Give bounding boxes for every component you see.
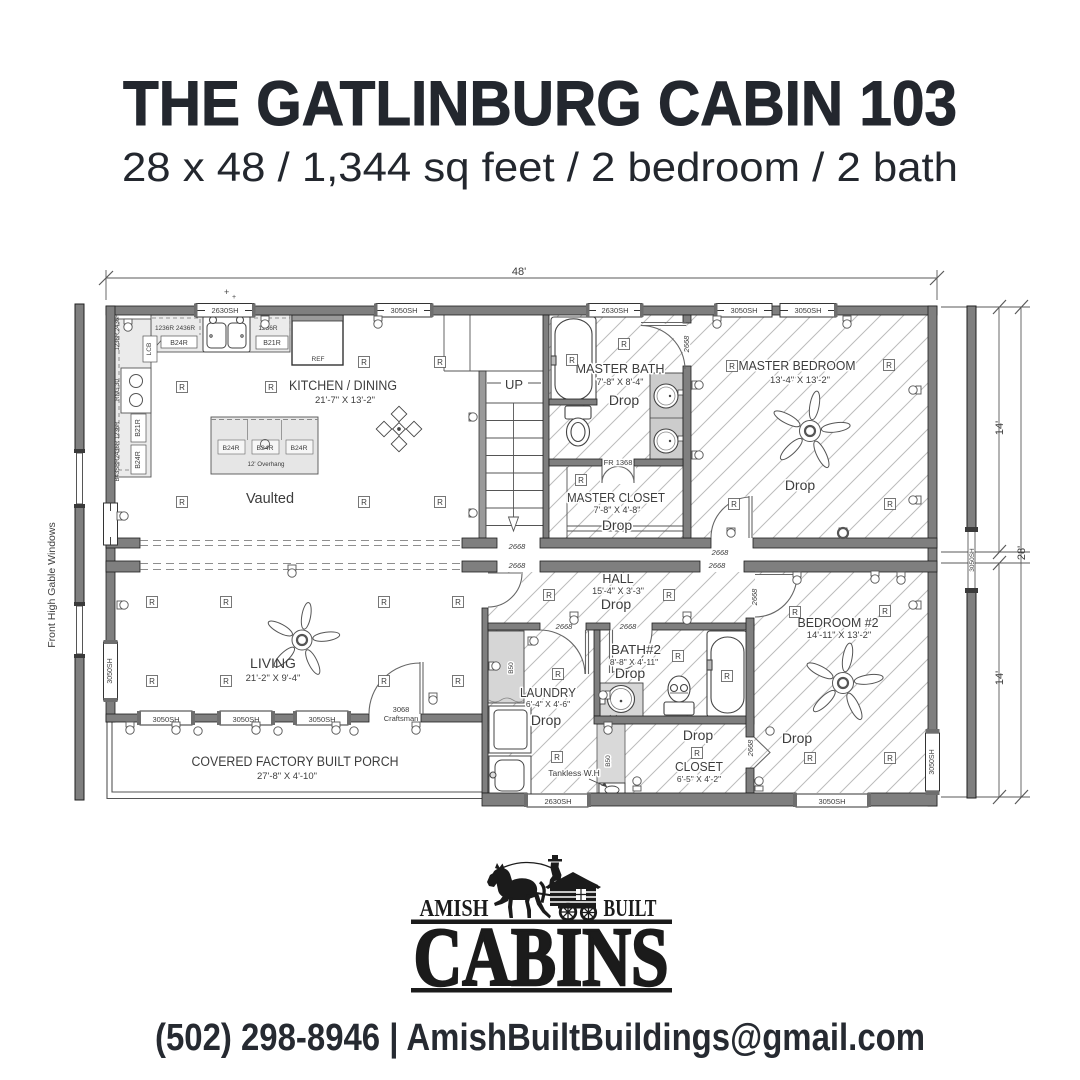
svg-text:R: R <box>455 677 461 686</box>
svg-text:COVERED FACTORY BUILT PORCH: COVERED FACTORY BUILT PORCH <box>192 754 399 769</box>
svg-text:LAUNDRY: LAUNDRY <box>520 686 577 700</box>
svg-text:2668: 2668 <box>508 542 527 551</box>
svg-text:UP: UP <box>505 377 523 392</box>
svg-text:2630SH: 2630SH <box>544 797 571 806</box>
svg-text:R: R <box>807 754 813 763</box>
svg-text:R: R <box>729 362 735 371</box>
svg-text:Drop: Drop <box>531 712 562 728</box>
svg-text:6'-5" X 4'-2": 6'-5" X 4'-2" <box>677 774 721 784</box>
svg-text:R: R <box>223 598 229 607</box>
svg-text:R: R <box>887 754 893 763</box>
svg-text:B50: B50 <box>508 662 515 674</box>
svg-text:27'-8" X 4'-10": 27'-8" X 4'-10" <box>257 771 317 782</box>
svg-text:3050SH: 3050SH <box>818 797 845 806</box>
svg-text:Drop: Drop <box>601 596 632 612</box>
svg-text:B21R: B21R <box>263 340 281 347</box>
svg-text:R: R <box>361 358 367 367</box>
svg-text:B21R: B21R <box>135 419 142 437</box>
svg-text:R: R <box>437 358 443 367</box>
svg-text:Front High Gable Windows: Front High Gable Windows <box>46 522 58 647</box>
svg-text:14': 14' <box>994 421 1006 435</box>
svg-text:2668: 2668 <box>682 335 691 354</box>
svg-text:2436R 1236R: 2436R 1236R <box>115 421 121 459</box>
svg-text:Drop: Drop <box>683 727 714 743</box>
svg-text:2630SH: 2630SH <box>601 306 628 315</box>
svg-text:1236R 2436R: 1236R 2436R <box>155 325 195 332</box>
svg-text:3050SH: 3050SH <box>390 306 417 315</box>
svg-text:B24R: B24R <box>290 445 307 452</box>
svg-text:13'-4" X 13'-2": 13'-4" X 13'-2" <box>770 375 830 386</box>
svg-text:21'-2" X 9'-4": 21'-2" X 9'-4" <box>246 673 301 684</box>
svg-text:B24R: B24R <box>222 445 239 452</box>
svg-text:3050SH: 3050SH <box>107 658 114 683</box>
svg-text:R: R <box>792 608 798 617</box>
svg-text:Tankless W.H: Tankless W.H <box>548 768 600 778</box>
svg-text:3050SH: 3050SH <box>308 715 335 724</box>
svg-text:MASTER CLOSET: MASTER CLOSET <box>567 491 665 505</box>
svg-text:3050SH: 3050SH <box>969 548 976 572</box>
svg-text:R: R <box>578 476 584 485</box>
svg-text:2668: 2668 <box>711 548 730 557</box>
svg-text:3068: 3068 <box>393 705 410 714</box>
svg-text:7'-8" X 4'-8": 7'-8" X 4'-8" <box>594 505 641 515</box>
svg-text:R: R <box>569 356 575 365</box>
svg-text:+: + <box>232 294 236 301</box>
svg-text:R: R <box>887 500 893 509</box>
svg-text:14': 14' <box>994 671 1006 685</box>
svg-text:THE GATLINBURG CABIN 103: THE GATLINBURG CABIN 103 <box>123 69 957 139</box>
svg-text:R: R <box>437 498 443 507</box>
svg-text:12' Overhang: 12' Overhang <box>248 461 286 468</box>
svg-text:R: R <box>886 361 892 370</box>
svg-text:RNG 30: RNG 30 <box>115 379 121 401</box>
svg-text:R: R <box>381 677 387 686</box>
svg-text:15'-4" X 3'-3": 15'-4" X 3'-3" <box>592 586 644 596</box>
svg-text:R: R <box>381 598 387 607</box>
svg-text:R: R <box>268 383 274 392</box>
svg-text:R: R <box>546 591 552 600</box>
svg-text:MASTER BATH: MASTER BATH <box>576 362 665 376</box>
svg-text:BATH#2: BATH#2 <box>611 643 661 657</box>
svg-text:B50: B50 <box>605 755 612 767</box>
svg-text:B43SBR: B43SBR <box>115 458 121 482</box>
svg-text:HALL: HALL <box>602 572 633 586</box>
svg-text:R: R <box>361 498 367 507</box>
svg-text:Drop: Drop <box>609 392 640 408</box>
svg-text:3050SH: 3050SH <box>794 306 821 315</box>
svg-text:3050SH: 3050SH <box>730 306 757 315</box>
svg-text:BEDROOM #2: BEDROOM #2 <box>798 615 879 630</box>
svg-text:LIVING: LIVING <box>250 655 296 671</box>
svg-text:21'-7" X 13'-2": 21'-7" X 13'-2" <box>315 395 375 406</box>
svg-text:REF: REF <box>312 356 325 363</box>
svg-text:R: R <box>455 598 461 607</box>
svg-text:2668: 2668 <box>746 739 755 758</box>
svg-text:2630SH: 2630SH <box>211 306 238 315</box>
svg-text:R: R <box>179 498 185 507</box>
svg-text:R: R <box>731 500 737 509</box>
svg-text:CLOSET: CLOSET <box>675 760 723 774</box>
svg-text:R: R <box>555 670 561 679</box>
svg-text:2668: 2668 <box>555 622 574 631</box>
svg-text:(502) 298-8946 | AmishBuiltBui: (502) 298-8946 | AmishBuiltBuildings@gma… <box>155 1017 925 1059</box>
svg-text:48': 48' <box>512 266 526 278</box>
svg-text:Vaulted: Vaulted <box>246 491 294 507</box>
svg-text:R: R <box>149 598 155 607</box>
svg-text:7'-8" X 8'-4": 7'-8" X 8'-4" <box>597 377 644 387</box>
svg-text:R: R <box>666 591 672 600</box>
svg-text:R: R <box>694 749 700 758</box>
svg-text:R: R <box>724 672 730 681</box>
svg-text:28': 28' <box>1016 546 1028 560</box>
svg-text:28 x 48 / 1,344 sq feet / 2 be: 28 x 48 / 1,344 sq feet / 2 bedroom / 2 … <box>122 144 958 190</box>
svg-text:Drop: Drop <box>782 730 813 746</box>
svg-text:1236R 2436R: 1236R 2436R <box>115 313 121 351</box>
svg-text:R: R <box>621 340 627 349</box>
svg-text:B24R: B24R <box>170 340 188 347</box>
svg-text:3050SH: 3050SH <box>929 749 936 774</box>
svg-text:2668: 2668 <box>619 622 638 631</box>
svg-text:R: R <box>675 652 681 661</box>
svg-text:MASTER BEDROOM: MASTER BEDROOM <box>739 358 856 373</box>
svg-text:R: R <box>882 607 888 616</box>
svg-text:R: R <box>149 677 155 686</box>
svg-text:2668: 2668 <box>508 561 527 570</box>
svg-text:2668: 2668 <box>708 561 727 570</box>
svg-text:FR 1368: FR 1368 <box>604 458 633 467</box>
svg-text:R: R <box>223 677 229 686</box>
svg-text:LCB: LCB <box>146 343 153 356</box>
svg-text:6'-4" X 4'-6": 6'-4" X 4'-6" <box>526 699 570 709</box>
svg-text:B24R: B24R <box>135 451 142 469</box>
svg-text:R: R <box>179 383 185 392</box>
svg-text:R: R <box>554 753 560 762</box>
svg-text:Drop: Drop <box>785 477 816 493</box>
svg-text:2668: 2668 <box>750 588 759 607</box>
svg-text:14'-11" X 13'-2": 14'-11" X 13'-2" <box>807 630 872 641</box>
svg-text:+: + <box>224 287 229 297</box>
svg-text:KITCHEN / DINING: KITCHEN / DINING <box>289 378 397 393</box>
svg-text:Drop: Drop <box>602 517 633 533</box>
svg-text:Drop: Drop <box>615 665 646 681</box>
